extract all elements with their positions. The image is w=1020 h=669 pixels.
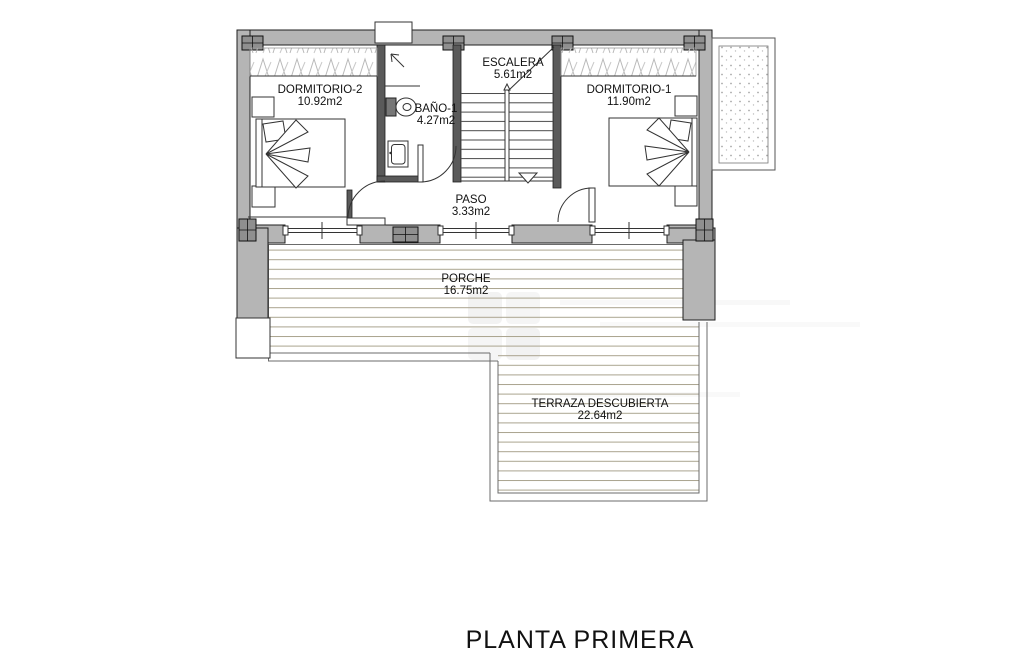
bathroom-west-wall bbox=[377, 45, 385, 182]
bed-dormitorio-1 bbox=[609, 96, 697, 206]
nightstand bbox=[675, 186, 697, 206]
door-dormitorio-1 bbox=[558, 188, 595, 222]
side-terrace-panel bbox=[712, 38, 775, 170]
label-dormitorio-1: DORMITORIO-1 bbox=[587, 84, 672, 96]
label-paso: PASO bbox=[455, 194, 486, 206]
label-porche: PORCHE bbox=[441, 273, 491, 285]
window bbox=[438, 222, 514, 239]
column bbox=[696, 219, 713, 241]
stair-stringer bbox=[505, 90, 509, 181]
wardrobe-dormitorio-2 bbox=[250, 48, 377, 76]
area-escalera: 5.61m2 bbox=[494, 69, 532, 81]
area-terraza: 22.64m2 bbox=[578, 410, 623, 422]
area-paso: 3.33m2 bbox=[452, 206, 490, 218]
plan-title: PLANTA PRIMERA bbox=[466, 626, 695, 654]
bathroom-door bbox=[418, 145, 456, 182]
stair-east-wall bbox=[553, 45, 561, 188]
nightstand bbox=[675, 96, 697, 116]
wardrobe-dormitorio-1 bbox=[561, 48, 696, 76]
label-dormitorio-2: DORMITORIO-2 bbox=[278, 84, 363, 96]
porch-right-pillar bbox=[683, 240, 715, 320]
door-dormitorio-2 bbox=[347, 181, 385, 225]
floor-plan-canvas: DORMITORIO-2 10.92m2 BAÑO-1 4.27m2 ESCAL… bbox=[0, 0, 1020, 669]
column bbox=[393, 227, 418, 242]
window bbox=[590, 222, 669, 239]
bed-dormitorio-2 bbox=[252, 97, 345, 207]
porch-decking bbox=[268, 244, 699, 361]
area-dormitorio-1: 11.90m2 bbox=[607, 96, 651, 108]
roof-vent bbox=[375, 22, 412, 43]
label-bano-1: BAÑO-1 bbox=[415, 102, 458, 115]
area-dormitorio-2: 10.92m2 bbox=[298, 96, 343, 108]
area-bano-1: 4.27m2 bbox=[417, 115, 455, 127]
shower-arrow-icon bbox=[391, 54, 404, 67]
nightstand bbox=[252, 97, 274, 117]
windows bbox=[283, 222, 669, 239]
column bbox=[239, 219, 256, 241]
porch-left-plinth bbox=[236, 318, 270, 358]
area-porche: 16.75m2 bbox=[444, 285, 489, 297]
nightstand bbox=[252, 186, 275, 207]
toilet-icon bbox=[386, 98, 416, 116]
label-terraza: TERRAZA DESCUBIERTA bbox=[532, 398, 669, 410]
label-escalera: ESCALERA bbox=[482, 57, 544, 69]
sink-icon bbox=[388, 141, 408, 167]
